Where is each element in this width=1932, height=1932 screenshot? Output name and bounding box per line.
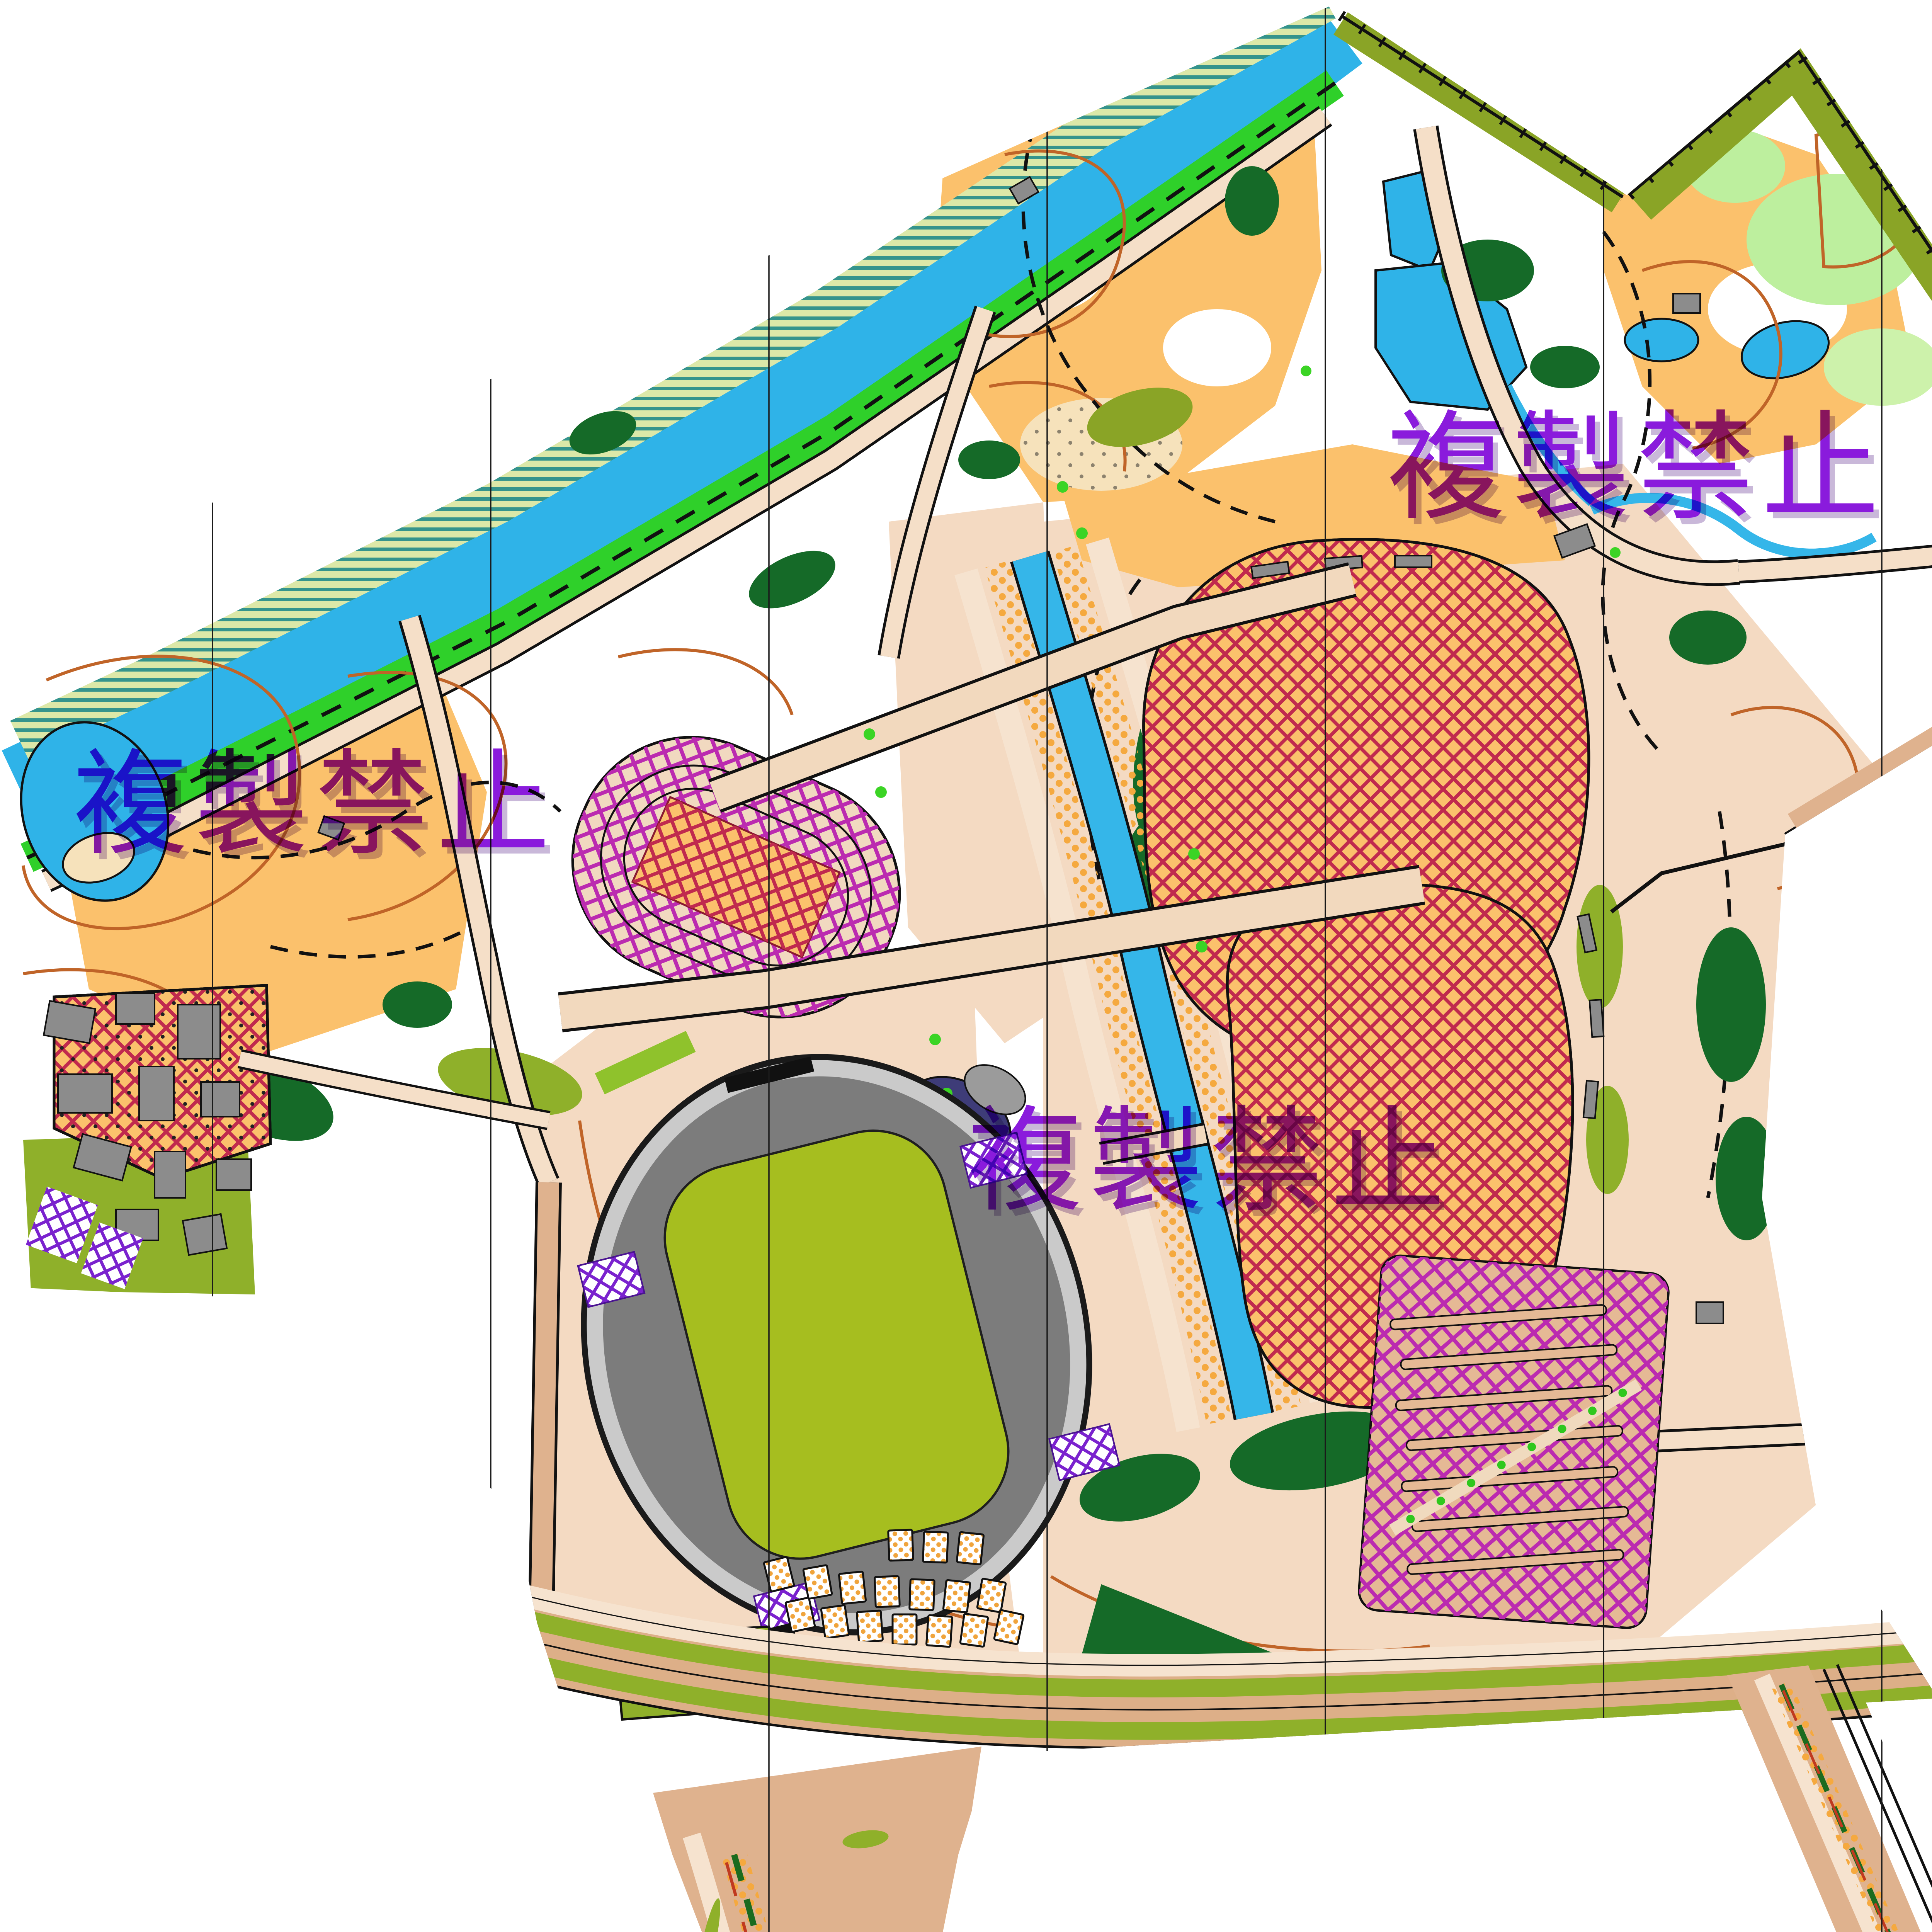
orienteering-map: 複製禁止 複製禁止 複製禁止 スタジアムスプリント開催のため、 一応隠しておきま…: [0, 0, 1932, 1932]
copy-prohibited-watermark-center: 複製禁止: [968, 1104, 1452, 1218]
copy-prohibited-watermark-topright: 複製禁止: [1387, 409, 1886, 527]
copy-prohibited-watermark-left: 複製禁止: [73, 748, 557, 862]
parking-out-of-bounds: [1358, 1254, 1670, 1629]
map-canvas: [0, 0, 1932, 1932]
